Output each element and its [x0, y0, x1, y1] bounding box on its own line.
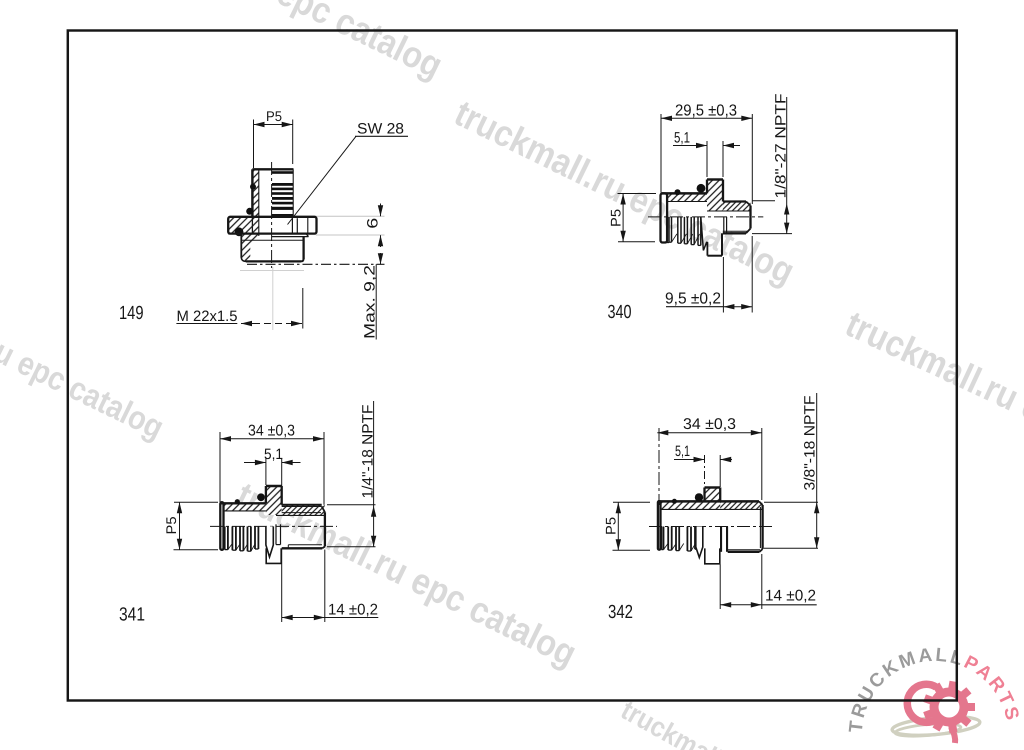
- svg-text:9,5 ±0,2: 9,5 ±0,2: [665, 291, 721, 308]
- svg-text:5,1: 5,1: [675, 443, 690, 460]
- svg-text:P5: P5: [163, 516, 179, 534]
- svg-text:P5: P5: [608, 209, 624, 227]
- svg-text:SW 28: SW 28: [357, 121, 404, 138]
- svg-text:M 22x1.5: M 22x1.5: [177, 308, 238, 325]
- svg-text:341: 341: [119, 605, 145, 626]
- svg-text:5,1: 5,1: [674, 130, 690, 147]
- svg-text:P5: P5: [603, 517, 619, 535]
- svg-text:5,1: 5,1: [264, 446, 283, 463]
- svg-text:340: 340: [608, 302, 632, 323]
- svg-text:P5: P5: [266, 108, 282, 124]
- svg-text:34 ±0,3: 34 ±0,3: [683, 416, 736, 433]
- svg-text:Max. 9,2: Max. 9,2: [361, 265, 378, 339]
- svg-text:149: 149: [119, 303, 144, 324]
- svg-text:6: 6: [365, 218, 382, 229]
- svg-text:14 ±0,2: 14 ±0,2: [765, 588, 816, 605]
- svg-text:3/8"-18 NPTF: 3/8"-18 NPTF: [801, 396, 818, 491]
- svg-text:34 ±0,3: 34 ±0,3: [248, 423, 295, 440]
- svg-text:14 ±0,2: 14 ±0,2: [328, 602, 378, 619]
- svg-text:342: 342: [608, 602, 633, 623]
- svg-text:29,5 ±0,3: 29,5 ±0,3: [675, 103, 737, 120]
